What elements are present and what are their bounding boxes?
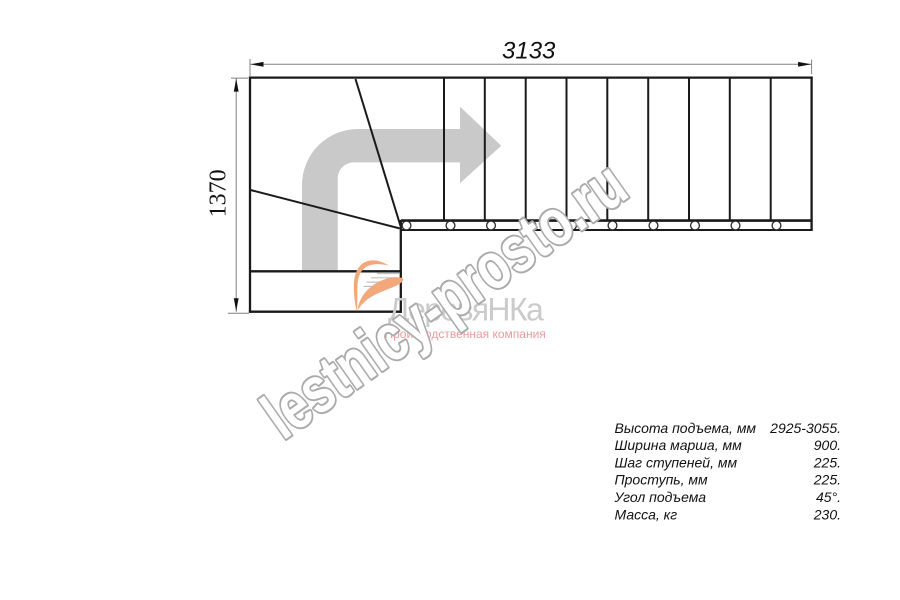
- svg-text:1370: 1370: [206, 169, 232, 217]
- svg-text:Масса, кг: Масса, кг: [615, 506, 678, 522]
- svg-text:900.: 900.: [814, 437, 841, 453]
- svg-text:Шаг ступеней, мм: Шаг ступеней, мм: [615, 454, 738, 470]
- svg-text:45°.: 45°.: [816, 489, 841, 505]
- svg-text:230.: 230.: [813, 506, 841, 522]
- svg-text:Высота подъема, мм: Высота подъема, мм: [615, 420, 757, 436]
- svg-text:Угол подъема: Угол подъема: [614, 489, 707, 505]
- svg-text:2925-3055.: 2925-3055.: [769, 420, 841, 436]
- svg-text:3133: 3133: [502, 38, 556, 65]
- svg-text:Ширина марша, мм: Ширина марша, мм: [615, 437, 743, 453]
- svg-text:225.: 225.: [813, 454, 841, 470]
- svg-text:Проступь, мм: Проступь, мм: [615, 472, 709, 488]
- svg-text:225.: 225.: [813, 472, 841, 488]
